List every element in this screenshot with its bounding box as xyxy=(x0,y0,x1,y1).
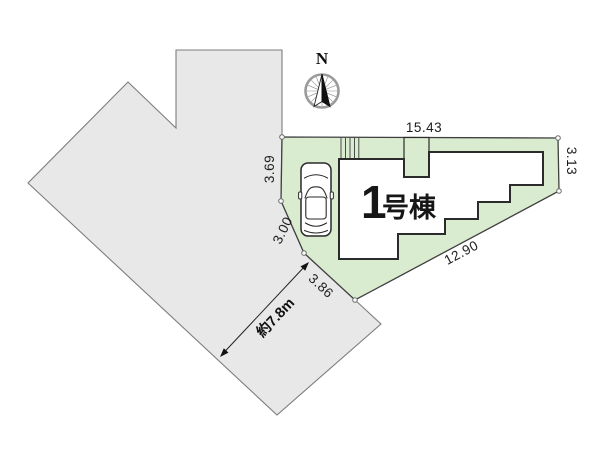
vertex-dot xyxy=(280,135,285,140)
entrance-porch xyxy=(404,138,429,178)
north-label: N xyxy=(316,49,329,68)
vertex-dot xyxy=(302,251,307,256)
vertex-dot xyxy=(556,136,561,141)
compass-rose-icon: N xyxy=(306,49,339,108)
car-icon xyxy=(299,163,334,236)
site-plan-diagram: 1 号棟 N 15.43 3.69 3.00 3.86 12.90 3.13 約… xyxy=(0,0,600,449)
vertex-dot xyxy=(557,189,562,194)
dim-top-edge: 15.43 xyxy=(406,120,442,135)
building-name-suffix: 号棟 xyxy=(382,193,437,223)
vertex-dot xyxy=(279,199,284,204)
dim-left-upper-edge: 3.69 xyxy=(262,155,277,183)
dim-right-edge: 3.13 xyxy=(564,147,579,175)
vertex-dot xyxy=(353,298,358,303)
